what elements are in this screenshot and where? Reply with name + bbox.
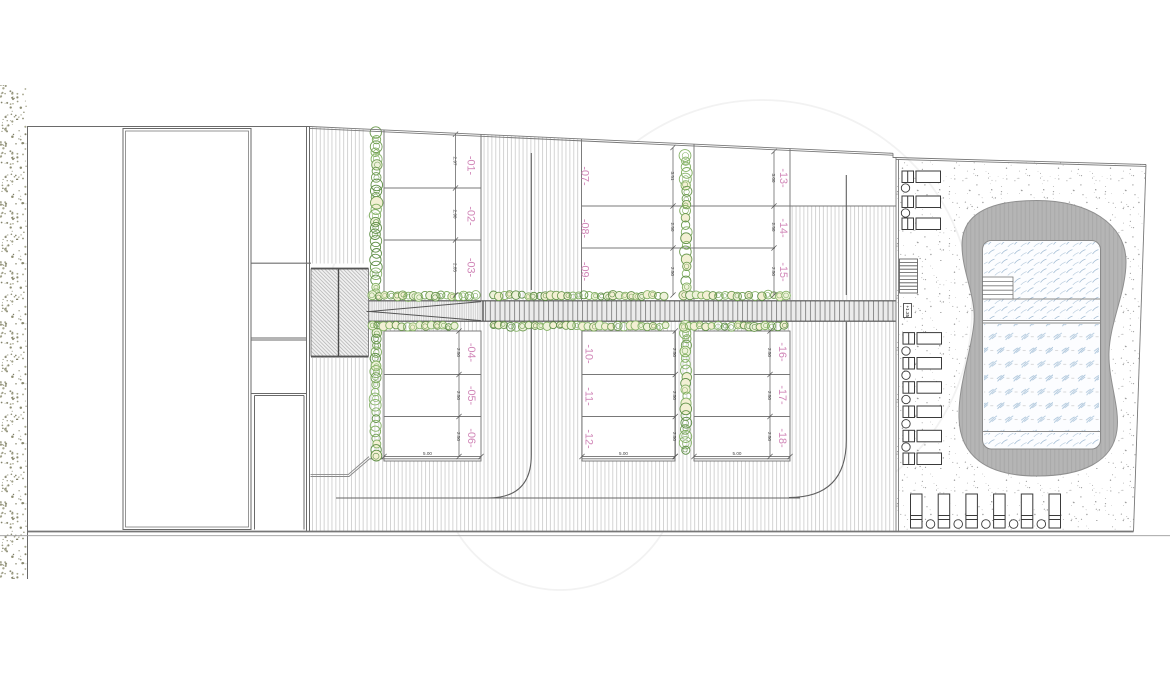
svg-text:2.50: 2.50 <box>670 223 675 232</box>
svg-text:2.50: 2.50 <box>767 391 772 400</box>
svg-text:-01-: -01- <box>465 156 477 176</box>
svg-text:-02-: -02- <box>465 206 477 226</box>
svg-text:+1.35: +1.35 <box>905 306 910 318</box>
svg-text:-14-: -14- <box>777 218 789 238</box>
svg-text:2.50: 2.50 <box>672 348 677 357</box>
svg-text:5.00: 5.00 <box>733 451 742 456</box>
svg-text:5.00: 5.00 <box>619 451 628 456</box>
svg-text:-11-: -11- <box>583 387 595 406</box>
svg-text:-06-: -06- <box>465 428 477 448</box>
svg-text:3.00: 3.00 <box>771 174 776 183</box>
svg-text:-16-: -16- <box>776 342 788 362</box>
svg-text:2.50: 2.50 <box>672 391 677 400</box>
svg-text:-12-: -12- <box>583 429 595 449</box>
svg-text:2.50: 2.50 <box>771 267 776 276</box>
svg-text:2.50: 2.50 <box>456 391 461 400</box>
svg-text:5.00: 5.00 <box>423 451 432 456</box>
svg-text:2.50: 2.50 <box>767 432 772 441</box>
svg-text:-07-: -07- <box>579 166 591 186</box>
svg-text:3.51: 3.51 <box>670 172 675 181</box>
svg-text:-13-: -13- <box>777 168 789 188</box>
svg-text:2.50: 2.50 <box>672 432 677 441</box>
svg-text:2.97: 2.97 <box>452 157 457 166</box>
svg-text:2.50: 2.50 <box>767 348 772 357</box>
svg-text:-03-: -03- <box>465 258 477 278</box>
svg-text:2.50: 2.50 <box>670 267 675 276</box>
svg-text:2.85: 2.85 <box>452 263 457 272</box>
svg-text:-18-: -18- <box>776 428 788 448</box>
svg-text:-09-: -09- <box>579 262 591 282</box>
svg-text:2.50: 2.50 <box>771 223 776 232</box>
svg-text:2.90: 2.90 <box>452 210 457 219</box>
svg-text:2.50: 2.50 <box>456 432 461 441</box>
svg-text:-15-: -15- <box>777 262 789 282</box>
svg-text:-10-: -10- <box>583 344 595 364</box>
svg-text:-17-: -17- <box>776 385 788 405</box>
svg-text:-08-: -08- <box>579 219 591 239</box>
svg-text:2.50: 2.50 <box>456 348 461 357</box>
svg-text:-04-: -04- <box>465 343 477 363</box>
svg-text:-05-: -05- <box>465 386 477 406</box>
